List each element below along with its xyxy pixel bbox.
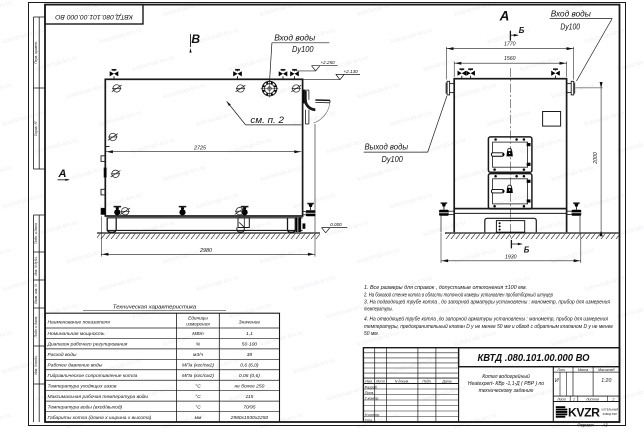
svg-text:1,1: 1,1 xyxy=(246,331,253,337)
svg-text:Лист: Лист xyxy=(375,379,385,383)
svg-text:1560: 1560 xyxy=(504,56,516,62)
svg-text:0,06 (0,6): 0,06 (0,6) xyxy=(239,373,260,379)
svg-text:В: В xyxy=(191,32,200,46)
svg-text:1770: 1770 xyxy=(504,42,516,48)
svg-text:Значение: Значение xyxy=(239,320,261,326)
svg-text:Инв. N подл.: Инв. N подл. xyxy=(34,355,38,374)
svg-text:4. На отводящей трубе котла ,: 4. На отводящей трубе котла ,до запорной… xyxy=(364,316,608,323)
svg-text:Номинальная мощность: Номинальная мощность xyxy=(48,331,106,337)
svg-text:Единицы: Единицы xyxy=(188,316,208,321)
svg-text:МПа (кгс/см2): МПа (кгс/см2) xyxy=(182,363,214,369)
svg-text:Пров.: Пров. xyxy=(365,391,374,395)
svg-text:3. На подводящей трубе котла: 3. На подводящей трубе котла , до запорн… xyxy=(364,298,610,305)
svg-text:Инв. N дубл.: Инв. N дубл. xyxy=(34,256,38,275)
svg-text:Dy100: Dy100 xyxy=(560,22,580,31)
svg-text:Подп. и дата: Подп. и дата xyxy=(34,317,38,338)
svg-text:Дата: Дата xyxy=(441,379,451,383)
svg-text:техническому заданию: техническому заданию xyxy=(479,388,534,394)
svg-text:Dy100: Dy100 xyxy=(382,155,404,164)
svg-text:Взам. инв. N: Взам. инв. N xyxy=(34,284,38,304)
svg-text:КВТД.080.101.00.000 ВО: КВТД.080.101.00.000 ВО xyxy=(55,13,133,20)
svg-text:1: 1 xyxy=(573,398,575,402)
svg-text:°С: °С xyxy=(195,404,201,410)
svg-text:И: И xyxy=(555,378,559,384)
svg-text:2725: 2725 xyxy=(193,146,207,152)
svg-text:0.000: 0.000 xyxy=(330,222,342,227)
svg-text:Разраб.: Разраб. xyxy=(365,385,378,389)
svg-text:50 мм.: 50 мм. xyxy=(364,331,379,337)
svg-text:0,6 (6,0): 0,6 (6,0) xyxy=(240,363,259,369)
svg-text:КВТД .080.101.00.000 ВО: КВТД .080.101.00.000 ВО xyxy=(478,353,590,364)
svg-text:не более 250: не более 250 xyxy=(234,383,264,389)
svg-text:2. На боковой стенке котла в: 2. На боковой стенке котла в области топ… xyxy=(363,291,553,298)
svg-text:Подп.: Подп. xyxy=(422,379,431,383)
svg-text:+2.130: +2.130 xyxy=(344,69,359,74)
svg-text:КОТЕЛЬНЫЙ: КОТЕЛЬНЫЙ xyxy=(602,407,619,411)
svg-text:Масштаб: Масштаб xyxy=(598,368,615,372)
svg-text:Расход воды: Расход воды xyxy=(48,352,77,358)
svg-text:Лит.: Лит. xyxy=(556,368,565,372)
svg-text:Максимальная рабочая температу: Максимальная рабочая температура воды xyxy=(48,394,149,400)
svg-text:МВт: МВт xyxy=(192,331,203,337)
svg-text:Выход воды: Выход воды xyxy=(365,141,409,151)
svg-text:1:20: 1:20 xyxy=(601,378,611,384)
svg-text:Рабочее давление воды: Рабочее давление воды xyxy=(48,363,103,369)
svg-text:1930: 1930 xyxy=(505,254,517,260)
svg-text:МПа (кгс/см2): МПа (кгс/см2) xyxy=(182,373,214,379)
svg-text:Изм.: Изм. xyxy=(365,379,372,383)
svg-text:Утв.: Утв. xyxy=(365,418,373,422)
svg-text:Масса: Масса xyxy=(578,368,588,372)
svg-text:Н.контр.: Н.контр. xyxy=(365,413,380,417)
svg-text:Листов: Листов xyxy=(585,398,599,402)
svg-text:%: % xyxy=(196,342,201,348)
svg-text:50-100: 50-100 xyxy=(242,342,258,348)
svg-text:70/95: 70/95 xyxy=(243,404,256,410)
svg-text:А: А xyxy=(58,168,67,180)
svg-text:Вход воды: Вход воды xyxy=(274,32,316,42)
svg-text:мм: мм xyxy=(195,416,202,421)
svg-text:+2.250: +2.250 xyxy=(321,60,336,65)
svg-text:Гидравлическое сопротивление к: Гидравлическое сопротивление котла xyxy=(48,373,138,379)
svg-text:Котел водогрейный: Котел водогрейный xyxy=(482,373,530,380)
svg-text:Перв. примен.: Перв. примен. xyxy=(34,41,38,64)
svg-text:2980х1930х2250: 2980х1930х2250 xyxy=(230,415,269,421)
svg-text:1. Все размеры для справок ,: 1. Все размеры для справок , допустимые … xyxy=(364,285,527,291)
svg-text:температуры.: температуры. xyxy=(364,307,393,313)
svg-text:ЗАВОД РЭП: ЗАВОД РЭП xyxy=(603,412,618,416)
svg-text:А3: А3 xyxy=(601,422,608,427)
svg-text:температуры, предохранительный: температуры, предохранительный клапан D … xyxy=(364,323,613,330)
svg-text:Формат: Формат xyxy=(577,422,594,427)
svg-text:38: 38 xyxy=(247,352,253,358)
svg-text:А: А xyxy=(499,9,510,24)
svg-text:Лист: Лист xyxy=(556,398,566,402)
svg-text:2: 2 xyxy=(611,398,614,402)
svg-text:измерения: измерения xyxy=(186,322,210,327)
svg-text:Вход воды: Вход воды xyxy=(551,9,592,19)
svg-text:Т.контр.: Т.контр. xyxy=(365,396,380,400)
svg-text:м3/ч: м3/ч xyxy=(193,352,203,358)
svg-text:Габариты котла (длина х ширина: Габариты котла (длина х ширина х высота) xyxy=(48,415,152,421)
svg-text:Температура уходящих газов: Температура уходящих газов xyxy=(48,383,117,389)
svg-text:Б: Б xyxy=(524,246,530,255)
svg-text:Б: Б xyxy=(519,26,525,35)
svg-text:Диапазон рабочего регулировани: Диапазон рабочего регулирования xyxy=(47,342,128,348)
svg-text:°С: °С xyxy=(195,383,201,389)
svg-text:Справ. N°: Справ. N° xyxy=(34,120,38,136)
svg-text:Dy100: Dy100 xyxy=(292,45,314,54)
svg-text:2980: 2980 xyxy=(199,248,212,254)
svg-text:см. п. 2: см. п. 2 xyxy=(250,115,284,125)
svg-text:2000: 2000 xyxy=(593,152,599,165)
svg-text:Температура воды (вход/выход): Температура воды (вход/выход) xyxy=(48,404,123,410)
svg-text:N докум.: N докум. xyxy=(395,379,409,383)
svg-text:Подп. и дата: Подп. и дата xyxy=(34,223,38,244)
svg-text:°С: °С xyxy=(195,394,201,400)
svg-text:Наименование показателя: Наименование показателя xyxy=(48,320,111,326)
svg-text:115: 115 xyxy=(246,394,254,400)
svg-text:Техническая характеристика: Техническая характеристика xyxy=(113,305,197,311)
svg-text:Heatexpert- КВр -1,1-Д ( РВР ): Heatexpert- КВр -1,1-Д ( РВР ) по xyxy=(468,381,544,387)
svg-text:KVZR: KVZR xyxy=(568,406,600,420)
